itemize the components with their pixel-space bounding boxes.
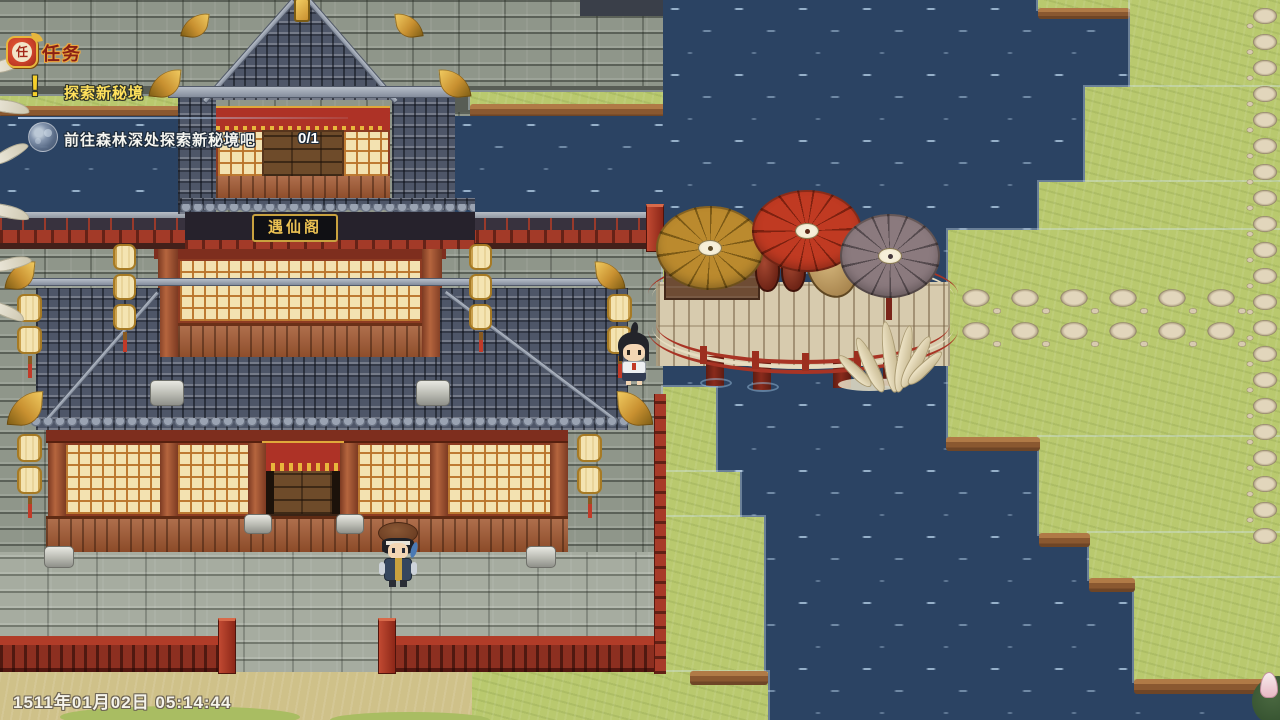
column-base [526,546,556,568]
collar-tie [632,363,636,370]
grass-bank [663,517,764,673]
quest-panel[interactable]: 任 任务 ! 探索新秘境 前往森林深处探索新秘境吧 0/1 [0,30,360,160]
game-viewport: 遇仙阁 [0,0,1280,720]
lantern-tassel [588,496,592,518]
grass-bank [663,387,716,473]
veranda-face [46,516,568,552]
boot [400,580,407,587]
bank-dirt [1039,533,1090,547]
lantern-icon [17,466,42,494]
lantern-icon [577,466,602,494]
badge-glyph: 任 [16,45,28,59]
ground-window [356,443,432,516]
grass-bank [1134,578,1280,681]
column-base [336,514,364,534]
mid-window-lattice [178,259,422,323]
quest-alert-icon: ! [30,70,40,104]
stepping-stones-row [952,284,1248,350]
column-base [44,546,74,568]
building-plaque: 遇仙阁 [252,214,338,242]
ground-column [48,443,66,519]
ground-column [248,443,266,519]
boot [389,580,396,587]
arm [411,562,417,575]
reeds [845,315,945,395]
ground-column [160,443,178,519]
column-base [416,380,450,406]
ground-window [64,443,162,516]
wall-cap [580,0,663,16]
ground-column [550,443,568,519]
face [388,543,408,559]
npc-character[interactable] [616,326,652,384]
quest-badge-icon[interactable]: 任 [6,36,38,68]
lantern-icon [469,244,492,270]
robe-trim [395,558,402,581]
bank-dirt [946,437,1040,451]
lantern-icon [113,304,136,330]
ground-window [446,443,552,516]
fence-post [218,618,236,674]
east-fence [654,394,666,674]
roof-finial [294,0,310,22]
hair-strand [619,346,623,361]
lantern-tassel [479,332,483,352]
tower-wall-band [216,176,390,200]
lantern-icon [577,434,602,462]
moon-orb-icon [28,122,58,152]
fence-post [378,618,396,674]
quest-title[interactable]: 探索新秘境 [64,82,144,103]
ground-column [430,443,448,519]
player-character[interactable] [376,520,420,590]
parasol-gray [840,214,940,298]
quest-objective-text[interactable]: 前往森林深处探索新秘境吧 [64,129,256,150]
lantern-icon [113,274,136,300]
bank-dirt [1089,578,1135,592]
mid-window-beam [154,249,446,259]
ground-window [176,443,250,516]
courtyard-fence [392,636,666,672]
courtyard-fence [0,636,222,672]
stepping-stones-column [1243,4,1280,544]
ground-column [340,443,358,519]
lantern-icon [17,434,42,462]
quest-header-label[interactable]: 任务 [42,40,82,66]
column-base [244,514,272,534]
mid-balcony-planks [178,323,422,360]
arm [379,562,385,575]
lantern-icon [607,294,632,322]
lantern-icon [469,274,492,300]
parasol-gold [656,206,764,290]
lantern-tassel [28,496,32,518]
ground-grass-strip [472,672,668,720]
quest-divider [18,117,348,119]
datetime-display: 1511年01月02日 05:14:44 [13,688,231,713]
skirt [622,373,646,381]
lantern-tassel [28,356,32,378]
moat-water [455,116,663,213]
grass-bank [663,472,740,518]
lantern-icon [469,304,492,330]
hair-strand [645,346,649,361]
quest-progress-counter: 0/1 [298,130,319,147]
lantern-icon [17,326,42,354]
plaque-text: 遇仙阁 [268,219,322,236]
water-ripple [747,382,779,392]
water-ripple [700,378,732,388]
column-base [150,380,184,406]
lantern-tassel [123,332,127,352]
lantern-icon [113,244,136,270]
bank-dirt [690,671,768,685]
door-valance [262,441,344,471]
tower-side-roof [392,96,455,214]
bank-dirt [1038,8,1130,19]
